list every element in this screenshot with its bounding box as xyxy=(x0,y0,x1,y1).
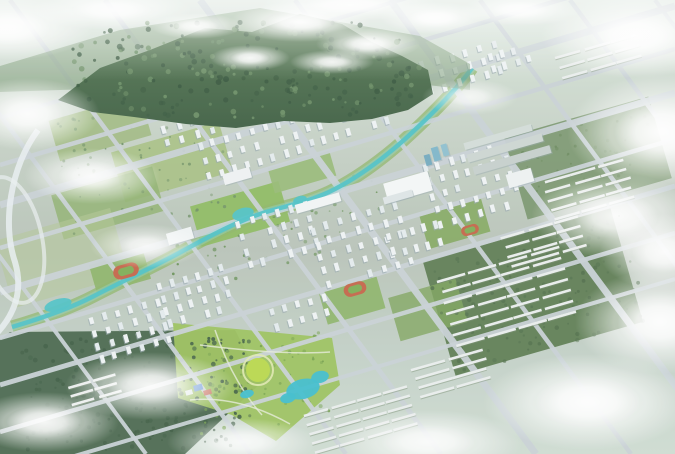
masterplan-scene xyxy=(0,0,675,454)
aerial-city-render xyxy=(0,0,675,454)
